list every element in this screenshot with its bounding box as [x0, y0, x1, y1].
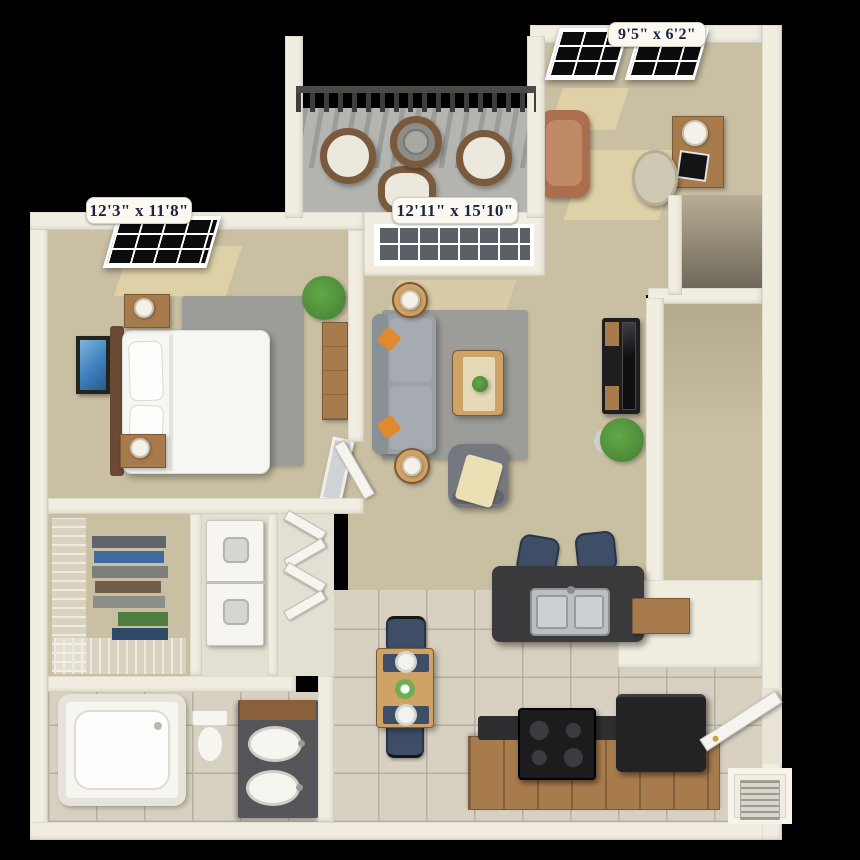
toilet [192, 710, 228, 726]
closet-shelf-bottom [54, 638, 186, 674]
bed-duvet-fold [169, 335, 173, 471]
balcony-left-wall [285, 36, 303, 218]
sink-basin [574, 595, 604, 629]
outer-wall-left [30, 212, 48, 840]
clothes-item [93, 596, 165, 608]
sink-faucet [567, 586, 575, 594]
kitchen-bar-counter [492, 566, 644, 642]
sink-basin [536, 595, 568, 629]
bathroom-right-wall [318, 676, 334, 822]
dining-chair [386, 724, 424, 758]
linen-closet-floor [278, 514, 334, 676]
den-armchair [538, 110, 590, 198]
dimension-text: 12'3" x 11'8" [89, 201, 188, 221]
sofa-cushion [390, 318, 432, 382]
clothes-item [92, 536, 166, 548]
tv-console [602, 318, 640, 414]
artwork [76, 336, 110, 394]
bathtub-drain [154, 722, 162, 730]
den-bottom-wall [648, 288, 762, 304]
refrigerator [616, 694, 706, 772]
den-closet-floor [682, 195, 762, 290]
clothes-item [92, 566, 168, 578]
table-lamp [400, 290, 420, 310]
clothes-item [94, 551, 164, 563]
bathtub [58, 694, 186, 806]
dimension-text: 9'5" x 6'2" [618, 26, 696, 44]
dining-table [376, 648, 434, 728]
kitchen-sink [530, 588, 610, 636]
vanity-sink [248, 726, 302, 762]
balcony-railing [296, 86, 536, 112]
patio-chair [320, 128, 376, 184]
patio-table-glass [403, 129, 429, 155]
vent-grille [740, 780, 780, 820]
laundry-divider-wall [268, 514, 278, 676]
dimension-label-bedroom: 12'3" x 11'8" [86, 197, 192, 224]
table-lamp [402, 456, 422, 476]
den-armchair-cushion [546, 120, 582, 186]
computer-monitor [676, 150, 710, 182]
dimension-text: 12'11" x 15'10" [397, 201, 514, 221]
accent-chair [448, 444, 508, 508]
living-room-window [374, 224, 534, 266]
bathroom-top-wall [48, 676, 296, 692]
table-lamp [130, 438, 150, 458]
sofa-cushion [390, 386, 432, 450]
dimension-label-living-room: 12'11" x 15'10" [392, 197, 518, 224]
bathroom-vanity [238, 700, 318, 818]
bedroom-right-wall [348, 230, 364, 442]
sofa [372, 314, 436, 454]
stove [518, 708, 596, 780]
stacked-washer-dryer [206, 520, 264, 646]
clothes-item [95, 581, 161, 593]
living-room-plant [600, 418, 644, 462]
utility-alcove [728, 768, 792, 824]
table-lamp [134, 298, 154, 318]
washer-door [223, 599, 249, 625]
dining-chair [386, 616, 426, 650]
tv-console-door [605, 386, 619, 410]
sink-faucet [298, 740, 305, 747]
washer-dryer-seam [207, 581, 265, 584]
bedroom-bottom-wall [48, 498, 364, 514]
tv-screen [622, 322, 636, 410]
clothes-item [112, 628, 168, 640]
closet-divider-wall [190, 514, 202, 676]
entry-hall-floor [664, 303, 762, 590]
kitchen-cabinet-box [632, 598, 690, 634]
tv-console-door [605, 322, 619, 346]
dimension-label-den: 9'5" x 6'2" [608, 22, 706, 47]
floorplan-image: 12'3" x 11'8" 12'11" x 15'10" 9'5" x 6'2… [0, 0, 860, 860]
passage-floor [545, 230, 646, 276]
flower-centerpiece [395, 679, 415, 699]
coffee-table [452, 350, 504, 416]
patio-table [390, 116, 442, 168]
balcony-right-wall [527, 36, 545, 218]
dinner-plate [395, 651, 417, 673]
vanity-sink [246, 770, 300, 806]
sink-faucet [296, 784, 303, 791]
patio-chair [456, 130, 512, 186]
bedroom-plant [302, 276, 346, 320]
dresser [322, 322, 348, 420]
entry-divider-wall [646, 298, 664, 608]
den-closet-wall [668, 195, 682, 295]
centerpiece-plant [472, 376, 488, 392]
bed-pillow [128, 340, 164, 401]
dinner-plate [395, 704, 417, 726]
vanity-wood-top [240, 700, 316, 720]
outer-wall-bottom [30, 822, 782, 840]
clothes-item [118, 612, 168, 626]
desk-lamp [682, 120, 708, 146]
toilet-bowl [197, 726, 223, 762]
dryer-door [223, 537, 249, 563]
door-knob [711, 735, 719, 743]
